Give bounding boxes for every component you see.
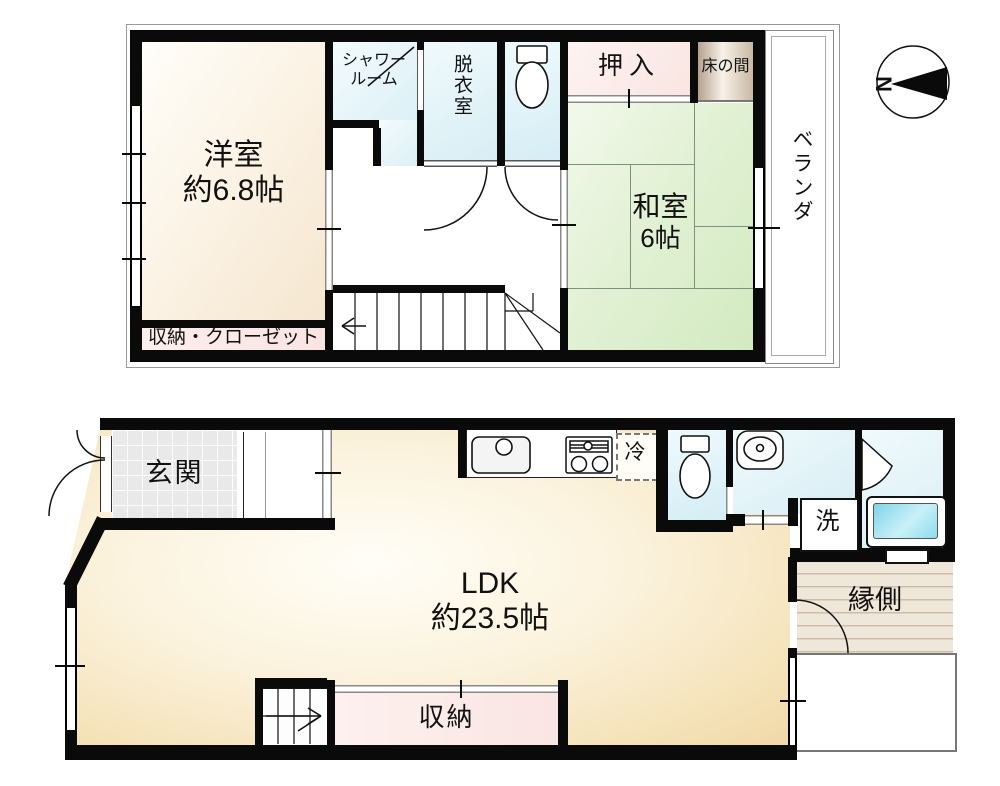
wall [130, 350, 765, 362]
bathtub-icon [866, 496, 947, 548]
wall [255, 678, 327, 688]
wall [373, 128, 381, 166]
window-tick [780, 700, 806, 702]
entrance-hall [237, 430, 330, 518]
wall [100, 518, 335, 530]
label-storage-1f: 収納 [335, 702, 558, 733]
wall [726, 430, 733, 487]
western-room-size: 約6.8帖 [142, 173, 325, 208]
terrace [795, 653, 957, 752]
wall [333, 120, 379, 128]
kitchen-counter [466, 430, 617, 478]
label-ldk: LDK 約23.5帖 [360, 566, 620, 637]
label-entrance: 玄関 [112, 458, 237, 490]
wall [497, 42, 505, 166]
western-room-name: 洋室 [142, 138, 325, 173]
label-storage-closet: 収納・クローゼット [142, 327, 325, 349]
wall [788, 498, 798, 526]
shower-door [417, 50, 424, 110]
door-tick [460, 680, 462, 698]
hall-frame-line [265, 432, 266, 518]
label-oshiire: 押入 [568, 52, 690, 82]
door-tick [317, 228, 341, 230]
bath-step [885, 549, 929, 564]
label-western-room: 洋室 約6.8帖 [142, 138, 325, 209]
ldk-size: 約23.5帖 [360, 601, 620, 636]
door-tick [762, 510, 764, 530]
wall [327, 680, 335, 745]
door-tick [628, 89, 630, 108]
label-tokonoma: 床の間 [697, 58, 754, 77]
label-veranda: ベランダ [786, 128, 816, 224]
wall [656, 430, 668, 532]
sliding-door-washroom [745, 515, 790, 525]
wall [558, 680, 568, 745]
sliding-door-western [325, 170, 333, 290]
label-dressing-room: 脱衣室 [448, 54, 475, 117]
compass-north-label: N [872, 76, 897, 92]
compass-icon: N [872, 46, 950, 118]
sliding-door-japanese [560, 170, 568, 288]
sliding-door-dressing [424, 160, 497, 167]
door-tick [315, 472, 341, 474]
wall [458, 430, 466, 478]
tatami-line [568, 288, 753, 289]
bathtub-water [873, 503, 938, 539]
label-shower-room: シャワー ルーム [334, 52, 414, 90]
ldk-name: LDK [360, 566, 620, 601]
wall [255, 678, 263, 745]
window-western-left [130, 105, 142, 307]
floorplan-canvas: 洋室 約6.8帖 シャワー ルーム 脱衣室 押入 床の間 和室 6帖 ベランダ … [0, 0, 1000, 786]
stairs-1f [262, 688, 329, 747]
label-refrigerator: 冷 [616, 441, 654, 466]
window-ldk-right [788, 658, 797, 745]
wall [560, 288, 568, 350]
wall [560, 30, 568, 170]
sliding-door-storage [335, 685, 558, 693]
hall-frame-line [243, 432, 244, 518]
wall [130, 30, 765, 42]
wall [726, 514, 745, 526]
wall [100, 418, 955, 430]
label-washing-machine: 洗 [800, 508, 855, 536]
entrance-door-opening [100, 436, 112, 512]
wall [660, 520, 733, 532]
window-ldk-left [65, 608, 77, 730]
shower-line1: シャワー [334, 52, 414, 71]
japanese-room-name: 和室 [568, 190, 753, 223]
room-shower-vestibule [379, 120, 417, 166]
window-tick [122, 258, 146, 260]
door-toilet-2f [505, 160, 560, 167]
label-engawa: 縁側 [797, 585, 953, 617]
tokonoma-edge [698, 100, 753, 102]
window-tick [55, 665, 85, 667]
wall [65, 745, 797, 760]
sliding-door-hall-ldk [322, 430, 332, 518]
japanese-room-size: 6帖 [568, 223, 753, 254]
wall [333, 285, 505, 293]
room-toilet-2f [505, 42, 560, 164]
room-toilet-1f [668, 430, 726, 520]
tatami-line [568, 164, 694, 165]
shower-line2: ルーム [334, 71, 414, 90]
label-japanese-room: 和室 6帖 [568, 190, 753, 254]
wall [788, 557, 797, 602]
